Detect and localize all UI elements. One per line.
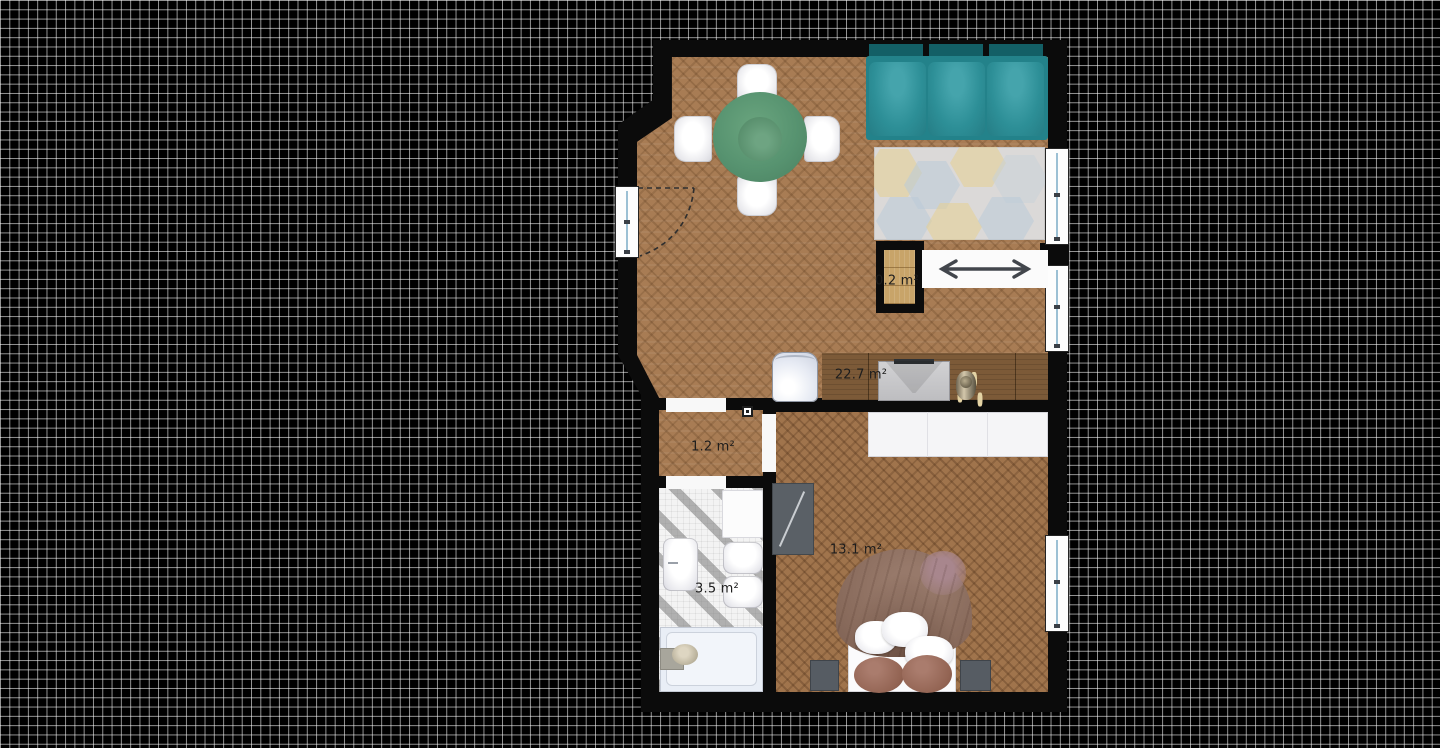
floorplan-canvas[interactable]: 22.7 m² 1.2 m² 3.5 m² 13.1 m² 0.2 m² <box>0 0 1440 748</box>
nightstand-right[interactable] <box>960 660 991 691</box>
rug-hexagon <box>978 197 1034 240</box>
sofa-seat-cushion <box>987 62 1044 136</box>
door-opening-bedroom[interactable] <box>762 414 776 472</box>
wardrobe[interactable] <box>868 412 1048 457</box>
refrigerator[interactable] <box>772 352 818 402</box>
bed-round-cushion <box>902 655 952 693</box>
bathroom-door-leaf[interactable] <box>722 490 763 538</box>
room-area-label-bathroom: 3.5 m² <box>695 582 739 597</box>
room-area-label-closet: 0.2 m² <box>875 274 919 289</box>
vanity-cabinet[interactable] <box>663 538 698 591</box>
window-right-1[interactable] <box>1045 148 1069 245</box>
sofa[interactable] <box>866 44 1048 140</box>
window-glass-line <box>1056 270 1058 347</box>
sofa-seat-cushion <box>869 62 926 136</box>
desk-chair[interactable] <box>878 361 950 401</box>
rug[interactable] <box>874 147 1045 240</box>
bed-round-cushion <box>854 657 904 693</box>
window-glass-line <box>1056 540 1058 627</box>
dining-chair[interactable] <box>674 116 712 162</box>
bathtub-faucet <box>672 644 698 665</box>
nightstand-left[interactable] <box>810 660 839 691</box>
room-area-label-bedroom: 13.1 m² <box>830 543 882 558</box>
door-opening-living-hallway[interactable] <box>666 398 726 412</box>
dining-chair[interactable] <box>737 176 777 216</box>
door-swing-arc-icon <box>636 182 698 264</box>
entry-mat[interactable] <box>922 250 1048 288</box>
sofa-seat-cushion <box>928 62 985 136</box>
dining-table-center <box>738 117 782 161</box>
dining-chair[interactable] <box>804 116 840 162</box>
outlet-icon <box>742 406 753 417</box>
window-glass-line <box>626 191 628 253</box>
window-bedroom[interactable] <box>1045 535 1069 632</box>
window-right-2[interactable] <box>1045 265 1069 352</box>
tv-panel[interactable] <box>772 483 814 555</box>
room-area-label-living: 22.7 m² <box>835 368 887 383</box>
toilet[interactable] <box>723 542 763 574</box>
dining-table[interactable] <box>713 92 807 182</box>
window-glass-line <box>1056 153 1058 240</box>
floor-lamp[interactable] <box>956 371 976 400</box>
door-opening-bathroom[interactable] <box>666 476 726 489</box>
coat-rack-icon <box>922 250 1048 288</box>
room-area-label-hallway: 1.2 m² <box>691 440 735 455</box>
